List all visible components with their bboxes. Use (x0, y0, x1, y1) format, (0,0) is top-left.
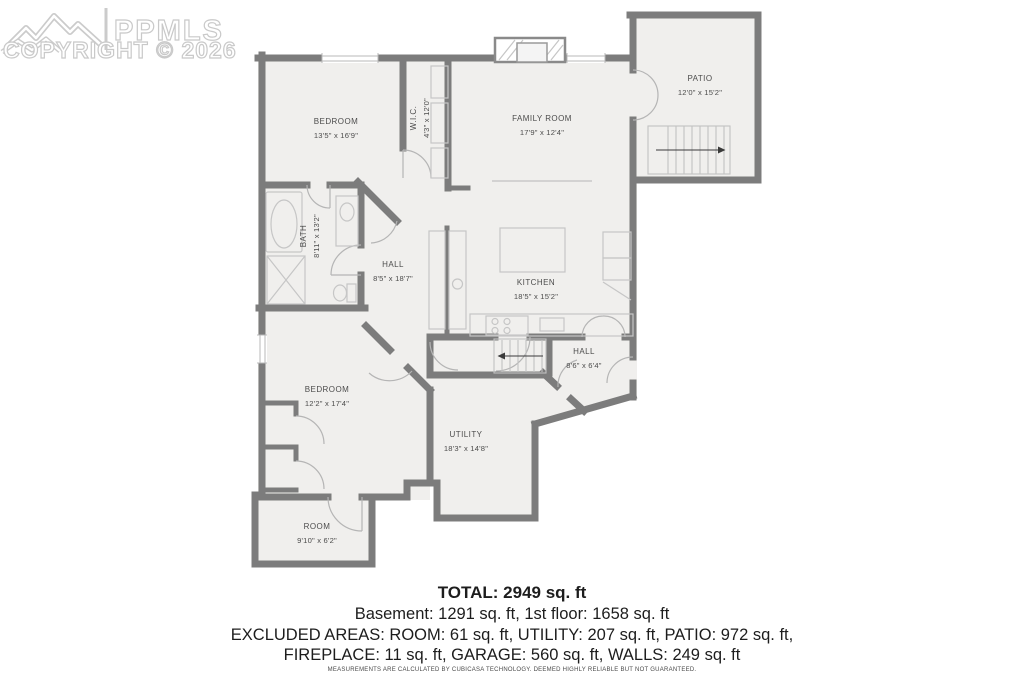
room-label-patio-name: PATIO (687, 74, 712, 83)
summary-floors: Basement: 1291 sq. ft, 1st floor: 1658 s… (355, 605, 670, 623)
room-label-hall-main-name: HALL (382, 260, 404, 269)
room-label-utility-name: UTILITY (450, 430, 483, 439)
room-label-kitchen-dims: 18'5" x 15'2" (514, 292, 558, 301)
summary-block: TOTAL: 2949 sq. ft Basement: 1291 sq. ft… (231, 583, 793, 673)
room-label-family-room-name: FAMILY ROOM (512, 114, 572, 123)
window-bedroom-upper (322, 53, 378, 63)
room-label-patio-dims: 12'0" x 15'2" (678, 88, 722, 97)
room-label-family-room-dims: 17'9" x 12'4" (520, 128, 564, 137)
room-label-bedroom-upper-dims: 13'5" x 16'9" (314, 131, 358, 140)
room-label-bedroom-lower-dims: 12'2" x 17'4" (305, 399, 349, 408)
summary-excluded-2: FIREPLACE: 11 sq. ft, GARAGE: 560 sq. ft… (284, 646, 741, 664)
room-label-wic-name: W.I.C. (409, 106, 418, 130)
watermark-copyright: COPYRIGHT © 2026 (3, 37, 237, 63)
room-label-bath-dims: 8'11" x 13'2" (312, 214, 321, 258)
watermark: PPMLS COPYRIGHT © 2026 (2, 8, 237, 63)
room-label-bedroom-upper-name: BEDROOM (314, 117, 359, 126)
room-label-kitchen-name: KITCHEN (517, 278, 555, 287)
floor-plan-svg: BEDROOM 13'5" x 16'9" W.I.C. 4'3" x 12'0… (0, 0, 1024, 682)
room-label-wic-dims: 4'3" x 12'0" (422, 98, 431, 138)
summary-excluded-1: EXCLUDED AREAS: ROOM: 61 sq. ft, UTILITY… (231, 626, 793, 644)
room-label-bedroom-lower-name: BEDROOM (305, 385, 350, 394)
summary-disclaimer: MEASUREMENTS ARE CALCULATED BY CUBICASA … (328, 667, 697, 673)
room-label-room-name: ROOM (304, 522, 331, 531)
room-label-room-dims: 9'10" x 6'2" (297, 536, 337, 545)
window-bedroom-lower (257, 335, 267, 363)
room-label-utility-dims: 18'3" x 14'8" (444, 444, 488, 453)
floor-plan-page: BEDROOM 13'5" x 16'9" W.I.C. 4'3" x 12'0… (0, 0, 1024, 682)
summary-total: TOTAL: 2949 sq. ft (438, 583, 587, 602)
room-label-hall-lower-dims: 8'6" x 6'4" (566, 361, 602, 370)
floor-areas (255, 15, 758, 567)
room-label-bath-name: BATH (299, 225, 308, 248)
room-label-hall-main-dims: 8'5" x 18'7" (373, 274, 413, 283)
window-family-room (567, 53, 605, 63)
room-label-hall-lower-name: HALL (573, 347, 595, 356)
fireplace (495, 38, 565, 62)
